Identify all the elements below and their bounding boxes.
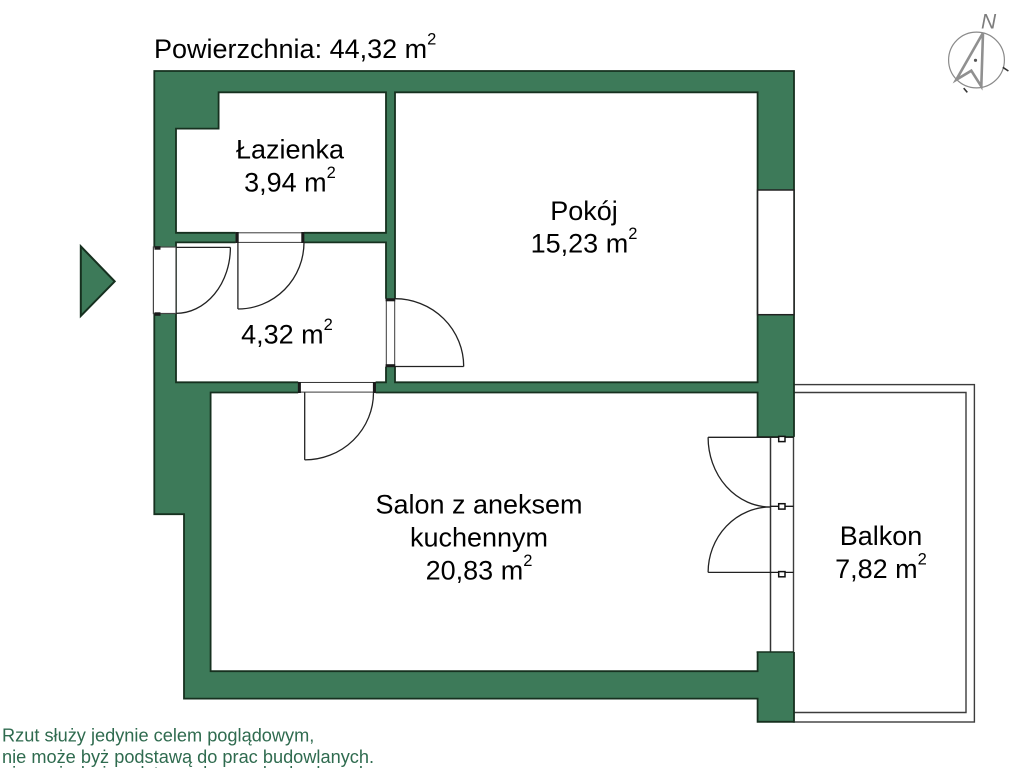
svg-text:Pokój: Pokój	[550, 196, 618, 226]
svg-text:Łazienka: Łazienka	[236, 135, 345, 165]
svg-text:kuchennym: kuchennym	[410, 523, 548, 553]
svg-text:Powierzchnia: 44,32 m2: Powierzchnia: 44,32 m2	[154, 30, 436, 64]
svg-text:4,32 m2: 4,32 m2	[241, 316, 333, 350]
svg-text:15,23 m2: 15,23 m2	[531, 225, 638, 259]
svg-text:20,83 m2: 20,83 m2	[426, 552, 533, 586]
svg-text:Balkon: Balkon	[840, 521, 923, 551]
svg-text:N: N	[981, 11, 997, 34]
svg-text:nie może byż podstawą do prac: nie może byż podstawą do prac budowlanyc…	[2, 764, 374, 768]
svg-text:Salon z aneksem: Salon z aneksem	[375, 490, 582, 520]
svg-text:3,94 m2: 3,94 m2	[244, 164, 336, 198]
svg-text:Rzut służy jedynie celem poglą: Rzut służy jedynie celem poglądowym,	[2, 725, 314, 745]
svg-text:7,82 m2: 7,82 m2	[835, 551, 927, 585]
